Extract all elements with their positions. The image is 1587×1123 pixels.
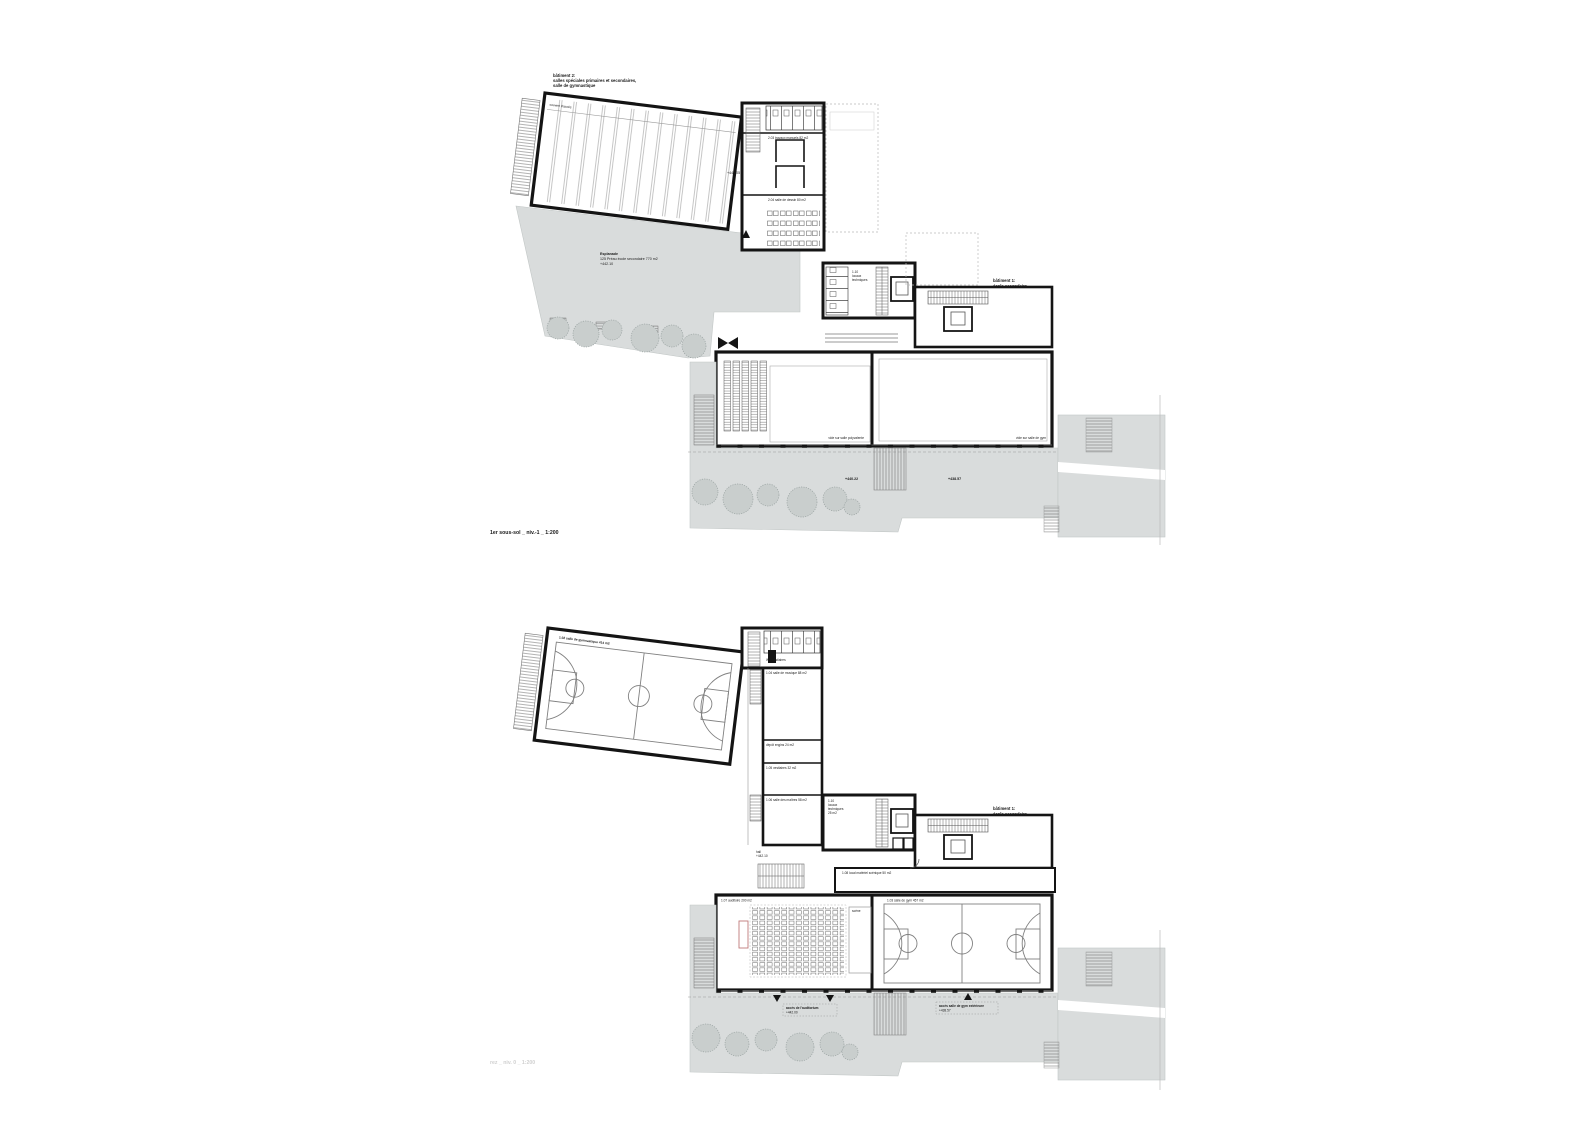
tree bbox=[842, 1044, 858, 1060]
elevator bbox=[891, 809, 913, 833]
access-left-line1: accès de l'auditorium bbox=[786, 1006, 819, 1010]
tree bbox=[755, 1029, 777, 1051]
bleacher bbox=[742, 361, 749, 431]
exterior-stair bbox=[874, 448, 906, 490]
building2-title: bâtiment 2: salles spéciales primaires e… bbox=[553, 73, 636, 88]
steps bbox=[1044, 1042, 1059, 1068]
halls-lower: 1.07 auditoire 200 m2 scène 1.03 salle d… bbox=[716, 895, 1052, 993]
wing-room-label: 1.04 salle de musique 88 m2 bbox=[766, 671, 807, 675]
hall-level-label: +441.05 bbox=[727, 171, 740, 175]
tree bbox=[682, 334, 706, 358]
plan-lower: 1.02 salle de gymnastique 414 m2 WC vest… bbox=[490, 625, 1165, 1090]
tree bbox=[573, 321, 599, 347]
void-label-left: vide sur salle polyvalente bbox=[828, 436, 864, 440]
elevator bbox=[944, 835, 972, 859]
auditorium-seats bbox=[752, 907, 844, 975]
plan-lower-title: rez _ niv. 0 _ 1:200 bbox=[490, 1060, 535, 1066]
building1-title-lower: bâtiment 1: école secondaire bbox=[993, 806, 1028, 817]
wc-stalls bbox=[764, 631, 820, 653]
tree bbox=[692, 1024, 720, 1052]
steps bbox=[1044, 506, 1059, 532]
wing-rooms: 1.04 salle de musique 88 m2 dépôt engins… bbox=[748, 668, 822, 845]
wing-room-label: 1.05 vestiaires 32 m2 bbox=[766, 766, 797, 770]
service-block: 1.10 locaux techniques bbox=[823, 263, 915, 318]
tree bbox=[844, 499, 860, 515]
canopy-outline bbox=[826, 104, 878, 232]
exterior-stair bbox=[874, 993, 906, 1035]
access-left-line2: +442.00 bbox=[786, 1011, 798, 1015]
tree bbox=[787, 487, 817, 517]
canopy-outline bbox=[906, 233, 978, 285]
plan-upper-title: 1er sous-sol _ niv.-1 _ 1:200 bbox=[490, 530, 559, 536]
tree bbox=[631, 324, 659, 352]
wing-wc-block: WC vestiaires bbox=[742, 628, 822, 668]
tree bbox=[692, 479, 718, 505]
scene-label: scène bbox=[852, 909, 861, 913]
tree bbox=[820, 1032, 844, 1056]
building2-line3: salle de gymnastique bbox=[553, 83, 596, 88]
revolving-door bbox=[718, 337, 738, 349]
floorplan-svg: couvert d'accès +441.05 bâtiment 2: sall… bbox=[0, 0, 1587, 1123]
wc-stalls bbox=[826, 267, 848, 315]
tree bbox=[602, 320, 622, 340]
esplanade-line2: 125 Préau école secondaire 770 m2 bbox=[600, 257, 658, 261]
tech-label: techniques bbox=[852, 278, 868, 282]
building1-line1: bâtiment 1: bbox=[993, 278, 1015, 283]
stair bbox=[750, 795, 761, 821]
hall-entry-label: hall +442.10 bbox=[756, 850, 768, 858]
right-terraces-lower bbox=[1044, 930, 1165, 1090]
stair bbox=[750, 670, 761, 704]
access-right-line1: accès salle de gym extérieure bbox=[939, 1004, 984, 1008]
drawing-sheet: couvert d'accès +441.05 bâtiment 2: sall… bbox=[0, 0, 1587, 1123]
stair bbox=[748, 632, 760, 666]
building1-line2: école secondaire bbox=[993, 812, 1028, 817]
stair bbox=[694, 395, 714, 445]
building1-line2: école secondaire bbox=[993, 284, 1028, 289]
tree bbox=[823, 487, 847, 511]
elevator bbox=[891, 277, 913, 301]
tree bbox=[661, 325, 683, 347]
bleacher bbox=[751, 361, 758, 431]
bleacher bbox=[733, 361, 740, 431]
elevator bbox=[944, 307, 972, 331]
tree bbox=[757, 484, 779, 506]
tree bbox=[723, 484, 753, 514]
tree bbox=[786, 1033, 814, 1061]
wc-label: WC vestiaires bbox=[766, 658, 786, 662]
wing-room-label: dépôt engins 24 m2 bbox=[766, 743, 794, 747]
right-terraces-upper bbox=[1044, 395, 1165, 545]
void-label-right: vide sur salle de gym bbox=[1016, 436, 1046, 440]
gym-hall-court: 1.02 salle de gymnastique 414 m2 bbox=[512, 625, 743, 764]
stair bbox=[746, 108, 760, 152]
bleacher bbox=[760, 361, 767, 431]
plan-upper: couvert d'accès +441.05 bâtiment 2: sall… bbox=[490, 73, 1165, 545]
building1-line1: bâtiment 1: bbox=[993, 806, 1015, 811]
halls-upper: vide sur salle polyvalente vide sur sall… bbox=[716, 352, 1052, 448]
tree bbox=[725, 1032, 749, 1056]
terrace-level-2: +438.57 bbox=[948, 477, 961, 481]
steps bbox=[1086, 952, 1112, 986]
building1-title-upper: bâtiment 1: école secondaire bbox=[993, 278, 1028, 289]
stage-store-label: 1.08 local matériel scénique 50 m2 bbox=[842, 871, 891, 875]
service-block-lower: 1.10 locaux techniques 25 m2 bbox=[823, 795, 915, 850]
ramp-lines bbox=[825, 334, 898, 342]
desk-grid bbox=[766, 206, 820, 246]
wc-stalls bbox=[766, 106, 822, 130]
esplanade-line3: +442.10 bbox=[600, 262, 613, 266]
access-right-line2: +438.57 bbox=[939, 1009, 951, 1013]
gym-hall-roof: couvert d'accès bbox=[509, 90, 741, 229]
terrace-level-1: +440.22 bbox=[845, 477, 858, 481]
special-rooms-block: 2.03 travaux manuels 82 m2 2.04 salle de… bbox=[742, 103, 824, 250]
wing-room-label: 1.06 salle des maîtres 58 m2 bbox=[766, 798, 807, 802]
hall-entry-line2: +442.10 bbox=[756, 854, 768, 858]
tech-label: 25 m2 bbox=[828, 811, 837, 815]
building1-wing bbox=[915, 287, 1052, 347]
steps bbox=[1086, 418, 1112, 452]
stair bbox=[694, 938, 714, 988]
bleacher bbox=[724, 361, 731, 431]
canopy-detail bbox=[830, 112, 874, 130]
gym-label: 1.03 salle de gym 457 m2 bbox=[887, 899, 924, 903]
auditorium-label: 1.07 auditoire 200 m2 bbox=[721, 899, 752, 903]
room-label: 2.03 travaux manuels 82 m2 bbox=[768, 136, 808, 140]
building1-wing-lower bbox=[915, 815, 1052, 868]
room-label: 2.04 salle de dessin 80 m2 bbox=[768, 198, 806, 202]
tree bbox=[547, 317, 569, 339]
esplanade-line1: Esplanade bbox=[600, 252, 618, 256]
